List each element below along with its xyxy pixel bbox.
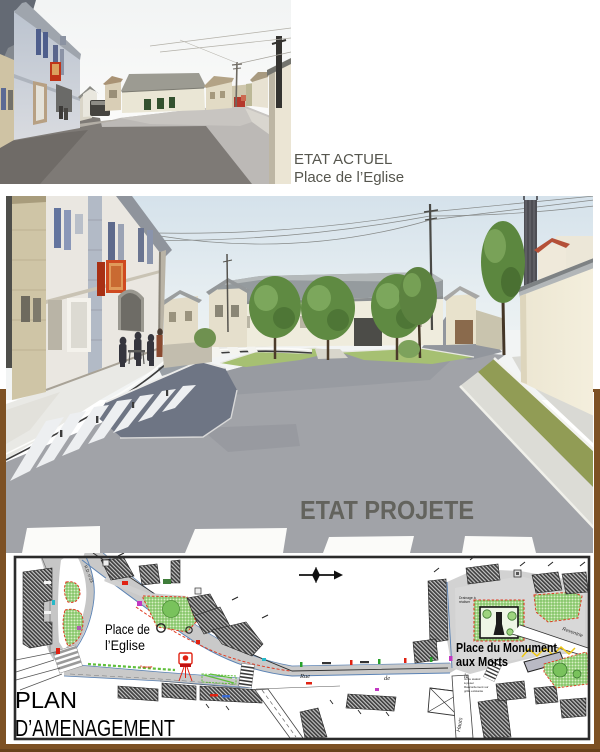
svg-text:Place de: Place de — [105, 622, 150, 637]
svg-text:D’AMENAGEMENT: D’AMENAGEMENT — [15, 715, 175, 741]
svg-text:Passage: Passage — [140, 665, 153, 669]
svg-text:Place du Monument: Place du Monument — [456, 641, 558, 655]
svg-text:PLAN: PLAN — [15, 687, 77, 713]
svg-text:de: de — [384, 675, 390, 682]
svg-text:aux Morts: aux Morts — [456, 655, 508, 669]
svg-text:réaliser: réaliser — [459, 600, 471, 604]
svg-text:ETAT PROJETE: ETAT PROJETE — [300, 495, 474, 525]
svg-text:l’Eglise: l’Eglise — [105, 638, 145, 653]
svg-text:grille existante: grille existante — [464, 689, 484, 693]
svg-text:Rue: Rue — [299, 673, 310, 680]
